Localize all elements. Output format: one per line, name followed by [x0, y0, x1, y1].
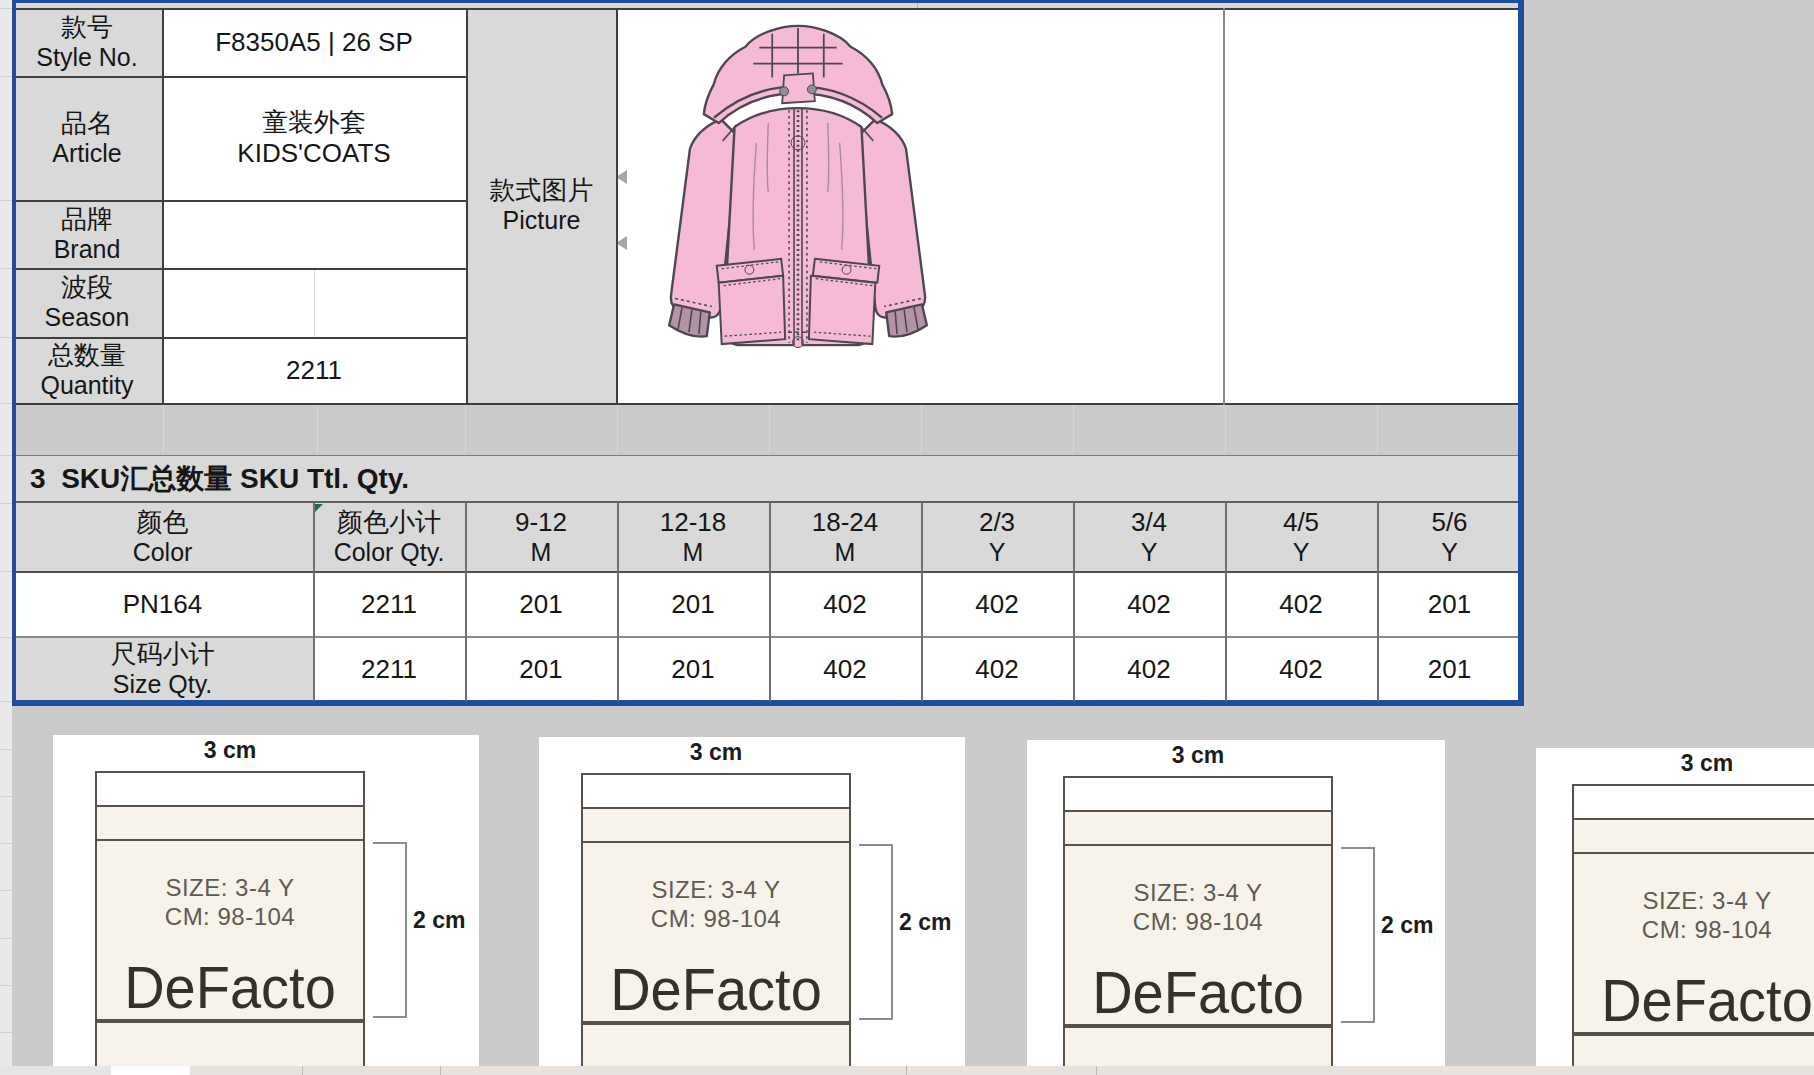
sku-total-cell[interactable]: 402: [1073, 637, 1225, 701]
size-text: SIZE: 3-4 Y CM: 98-104: [1065, 878, 1331, 937]
size-text: SIZE: 3-4 Y CM: 98-104: [583, 875, 849, 934]
tab-separator: [906, 1066, 907, 1075]
comment-indicator-icon: [314, 504, 323, 513]
sku-value-cell[interactable]: 402: [769, 572, 921, 637]
sku-total-cell[interactable]: 201: [465, 637, 617, 701]
sku-total-cell[interactable]: 402: [1225, 637, 1377, 701]
selection-border-bottom: [12, 700, 1524, 706]
sku-header-12-18m[interactable]: 12-18 M: [617, 503, 769, 572]
gridline: [12, 76, 466, 78]
gridline: [12, 403, 1522, 405]
sku-header-18-24m[interactable]: 18-24 M: [769, 503, 921, 572]
size-text: SIZE: 3-4 Y CM: 98-104: [97, 873, 363, 932]
gridline: [317, 405, 318, 455]
cell-picture-label[interactable]: 款式图片 Picture: [466, 8, 617, 403]
article-value-zh: 童装外套: [262, 107, 366, 138]
sku-size-qty-label-cell[interactable]: 尺码小计 Size Qty.: [12, 637, 313, 701]
tab-separator: [302, 1066, 303, 1075]
header-line2: M: [683, 538, 704, 568]
value: 2211: [361, 654, 417, 685]
header-line2: M: [835, 538, 856, 568]
label-bottom-strip: [95, 1021, 365, 1066]
cell-quantity-label[interactable]: 总数量 Quantity: [12, 337, 162, 403]
care-label-figure[interactable]: 3 cm SIZE: 3-4 Y CM: 98-104 DeFacto 2 cm: [1536, 748, 1814, 1066]
label-bottom-strip: [1572, 1034, 1814, 1066]
sku-header-color[interactable]: 颜色 Color: [12, 503, 313, 572]
brand-logo: DeFacto: [1065, 963, 1331, 1022]
tab-separator: [1096, 1066, 1097, 1075]
label-main: SIZE: 3-4 Y CM: 98-104 DeFacto: [1063, 844, 1333, 1026]
label-top-strip: [581, 773, 851, 809]
value: 402: [823, 589, 866, 620]
style-no-value: F8350A5 | 26 SP: [215, 27, 413, 58]
height-caption: 2 cm: [899, 909, 965, 936]
height-bracket: [405, 842, 407, 1018]
height-bracket: [1341, 847, 1375, 849]
sku-total-cell[interactable]: 2211: [313, 637, 465, 701]
care-label-figure[interactable]: 3 cm SIZE: 3-4 Y CM: 98-104 DeFacto 2 cm: [1027, 740, 1445, 1066]
gridline: [313, 503, 315, 701]
cell-season-label[interactable]: 波段 Season: [12, 268, 162, 337]
value: 201: [519, 589, 562, 620]
value: 402: [1279, 589, 1322, 620]
size-line: SIZE: 3-4 Y: [583, 875, 849, 904]
label-band: [581, 807, 851, 843]
sku-header-4-5y[interactable]: 4/5 Y: [1225, 503, 1377, 572]
picture-label-en: Picture: [503, 206, 581, 236]
gutter-gridline: [0, 843, 12, 844]
label-en: Quantity: [40, 371, 133, 401]
sku-color-name-cell[interactable]: PN164: [12, 572, 313, 637]
size-text: SIZE: 3-4 Y CM: 98-104: [1574, 886, 1814, 945]
label-top-strip: [95, 771, 365, 807]
sku-header-2-3y[interactable]: 2/3 Y: [921, 503, 1073, 572]
header-line1: 颜色小计: [337, 507, 441, 538]
gutter-gridline: [0, 76, 12, 77]
gridline: [12, 268, 466, 270]
sku-value-cell[interactable]: 402: [1225, 572, 1377, 637]
label-en: Season: [45, 303, 130, 333]
label-en: Style No.: [36, 43, 137, 73]
cell-brand-label[interactable]: 品牌 Brand: [12, 200, 162, 268]
header-line2: Y: [1141, 538, 1158, 568]
bottom-bar-tabs-area: [190, 1066, 1814, 1075]
height-bracket: [1341, 1021, 1375, 1023]
header-line2: Y: [989, 538, 1006, 568]
gridline: [12, 200, 466, 202]
brand-logo: DeFacto: [1574, 971, 1814, 1030]
coat-picture[interactable]: [648, 14, 948, 356]
size-line: SIZE: 3-4 Y: [1065, 878, 1331, 907]
gutter-gridline: [0, 1032, 12, 1033]
gutter-gridline: [0, 637, 12, 638]
sku-header-color-qty[interactable]: 颜色小计 Color Qty.: [313, 503, 465, 572]
label-en: Brand: [54, 235, 121, 265]
sku-total-cell[interactable]: 402: [921, 637, 1073, 701]
header-line1: 5/6: [1431, 507, 1467, 538]
label-band: [1063, 810, 1333, 846]
label-zh: 品名: [61, 108, 113, 139]
gridline: [617, 503, 619, 701]
width-caption: 3 cm: [95, 737, 365, 764]
label-zh: 品牌: [61, 204, 113, 235]
header-line2: Y: [1441, 538, 1458, 568]
brand-logo: DeFacto: [97, 958, 363, 1017]
sku-value-cell[interactable]: 201: [465, 572, 617, 637]
gutter-gridline: [0, 403, 12, 404]
label-top-strip: [1572, 784, 1814, 820]
sku-value-cell[interactable]: 2211: [313, 572, 465, 637]
height-bracket: [1373, 847, 1375, 1023]
cell-style-no-label[interactable]: 款号 Style No.: [12, 8, 162, 76]
label-band: [1572, 818, 1814, 854]
height-bracket: [859, 1018, 893, 1020]
label-en: Size Qty.: [113, 670, 213, 700]
gutter-gridline: [0, 938, 12, 939]
label-zh: 波段: [61, 272, 113, 303]
header-line1: 9-12: [515, 507, 567, 538]
value: 402: [1127, 589, 1170, 620]
care-label-figure[interactable]: 3 cm SIZE: 3-4 Y CM: 98-104 DeFacto 2 cm: [539, 737, 965, 1066]
label-en: Article: [52, 139, 121, 169]
value: 201: [671, 589, 714, 620]
gridline: [12, 571, 1522, 573]
height-caption: 2 cm: [1381, 912, 1447, 939]
value: 402: [1127, 654, 1170, 685]
value: 201: [1428, 654, 1471, 685]
sku-total-cell[interactable]: 201: [617, 637, 769, 701]
cell-article-label[interactable]: 品名 Article: [12, 76, 162, 200]
gutter-gridline: [0, 503, 12, 504]
article-value-en: KIDS'COATS: [237, 138, 390, 169]
header-line2: Color Qty.: [334, 538, 445, 568]
cell-empty-right[interactable]: [1224, 8, 1522, 403]
sku-value-cell[interactable]: 201: [1377, 572, 1522, 637]
width-caption: 3 cm: [1572, 750, 1814, 777]
label-zh: 款号: [61, 12, 113, 43]
gutter-gridline: [0, 796, 12, 797]
header-line1: 4/5: [1283, 507, 1319, 538]
gutter-gridline: [0, 268, 12, 269]
height-bracket: [373, 842, 407, 844]
gridline: [617, 405, 618, 455]
spreadsheet-canvas: 款号 Style No. 品名 Article 品牌 Brand 波段 Seas…: [0, 0, 1814, 1075]
value: 201: [671, 654, 714, 685]
header-line1: 18-24: [812, 507, 879, 538]
height-caption: 2 cm: [413, 907, 479, 934]
height-bracket: [859, 844, 893, 846]
header-line1: 3/4: [1131, 507, 1167, 538]
tab-separator: [440, 1066, 441, 1075]
gridline: [1225, 405, 1226, 455]
gridline: [769, 405, 770, 455]
value: 402: [823, 654, 866, 685]
height-bracket: [373, 1016, 407, 1018]
label-bottom-strip: [581, 1023, 851, 1066]
quantity-value: 2211: [286, 355, 342, 386]
label-main: SIZE: 3-4 Y CM: 98-104 DeFacto: [581, 841, 851, 1023]
gridline: [12, 636, 1522, 638]
value: 2211: [361, 589, 417, 620]
gutter-gridline: [0, 749, 12, 750]
gridline: [12, 337, 466, 339]
gridline: [1073, 405, 1074, 455]
label-band: [95, 805, 365, 841]
gridline: [12, 8, 1522, 10]
cm-line: CM: 98-104: [583, 904, 849, 933]
width-caption: 3 cm: [581, 739, 851, 766]
gridline: [314, 270, 315, 337]
color-name: PN164: [123, 589, 203, 620]
active-sheet-tab[interactable]: [111, 1066, 190, 1075]
label-top-strip: [1063, 776, 1333, 812]
label-main: SIZE: 3-4 Y CM: 98-104 DeFacto: [1572, 852, 1814, 1034]
selection-border-top: [12, 0, 1522, 3]
cm-line: CM: 98-104: [1065, 907, 1331, 936]
gridline: [769, 503, 771, 701]
gutter-gridline: [0, 8, 12, 9]
cell-quantity-value[interactable]: 2211: [162, 337, 466, 403]
gridline: [162, 8, 164, 405]
sku-section-header[interactable]: 3 SKU汇总数量 SKU Ttl. Qty.: [12, 455, 1522, 503]
gridline: [1377, 405, 1378, 455]
sku-section-title: 3 SKU汇总数量 SKU Ttl. Qty.: [12, 460, 409, 498]
kids-coat-sketch-image: [648, 14, 948, 356]
gridline: [466, 8, 468, 405]
sku-header-3-4y[interactable]: 3/4 Y: [1073, 503, 1225, 572]
value: 201: [1428, 589, 1471, 620]
label-bottom-strip: [1063, 1026, 1333, 1066]
sku-value-cell[interactable]: 402: [1073, 572, 1225, 637]
gutter-gridline: [0, 985, 12, 986]
gridline: [1377, 503, 1379, 701]
label-zh: 尺码小计: [111, 639, 215, 670]
cm-line: CM: 98-104: [97, 902, 363, 931]
sku-total-cell[interactable]: 402: [769, 637, 921, 701]
header-line2: Color: [133, 538, 193, 568]
gridline: [1225, 503, 1227, 701]
selection-border-right: [1518, 0, 1524, 706]
cm-line: CM: 98-104: [1574, 915, 1814, 944]
gutter-gridline: [0, 455, 12, 456]
header-line2: M: [531, 538, 552, 568]
gridline: [163, 405, 164, 455]
sku-value-cell[interactable]: 201: [617, 572, 769, 637]
cell-brand-value[interactable]: [162, 200, 466, 268]
gutter-gridline: [0, 337, 12, 338]
gridline: [465, 503, 467, 701]
value: 402: [1279, 654, 1322, 685]
size-line: SIZE: 3-4 Y: [1574, 886, 1814, 915]
gridline: [465, 405, 466, 455]
selection-border-left: [12, 0, 16, 706]
value: 402: [975, 589, 1018, 620]
gutter-gridline: [0, 701, 12, 702]
brand-logo: DeFacto: [583, 960, 849, 1019]
picture-label-zh: 款式图片: [490, 175, 594, 206]
header-line1: 12-18: [660, 507, 727, 538]
gutter-gridline: [0, 890, 12, 891]
sku-value-cell[interactable]: 402: [921, 572, 1073, 637]
header-line1: 2/3: [979, 507, 1015, 538]
cell-article-value[interactable]: 童装外套 KIDS'COATS: [162, 76, 466, 200]
cell-style-no-value[interactable]: F8350A5 | 26 SP: [162, 8, 466, 76]
header-line2: Y: [1293, 538, 1310, 568]
label-zh: 总数量: [48, 340, 126, 371]
gridline: [616, 8, 618, 405]
height-bracket: [891, 844, 893, 1020]
size-line: SIZE: 3-4 Y: [97, 873, 363, 902]
row-gutter: [0, 0, 12, 1075]
value: 201: [519, 654, 562, 685]
gridline: [921, 405, 922, 455]
gutter-gridline: [0, 571, 12, 572]
label-main: SIZE: 3-4 Y CM: 98-104 DeFacto: [95, 839, 365, 1021]
value: 402: [975, 654, 1018, 685]
gridline: [1073, 503, 1075, 701]
gridline: [1223, 8, 1225, 405]
gutter-gridline: [0, 200, 12, 201]
width-caption: 3 cm: [1063, 742, 1333, 769]
header-line1: 颜色: [137, 507, 189, 538]
sku-header-9-12m[interactable]: 9-12 M: [465, 503, 617, 572]
sku-header-5-6y[interactable]: 5/6 Y: [1377, 503, 1522, 572]
sku-total-cell[interactable]: 201: [1377, 637, 1522, 701]
care-label-figure[interactable]: 3 cm SIZE: 3-4 Y CM: 98-104 DeFacto 2 cm: [53, 735, 479, 1066]
gridline: [921, 503, 923, 701]
